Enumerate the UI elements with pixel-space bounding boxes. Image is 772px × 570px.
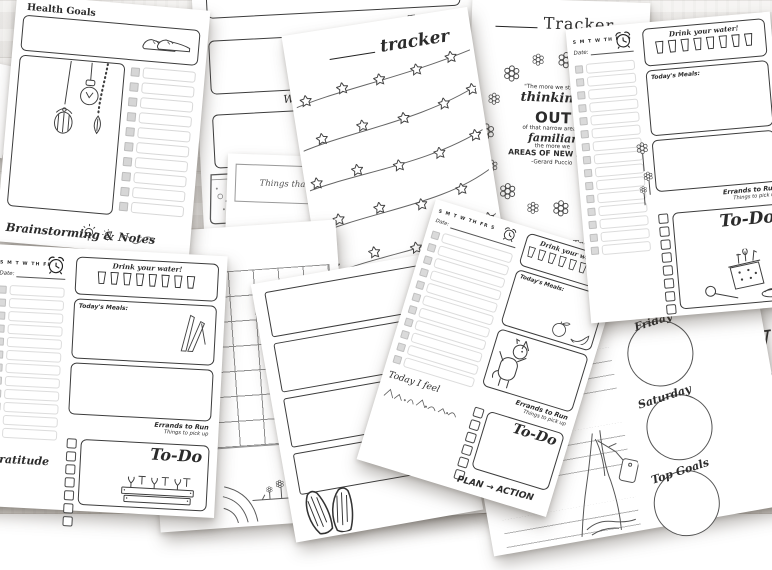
todo-checkbox: [665, 291, 676, 302]
todo-checkbox: [457, 456, 469, 468]
todo-checkbox: [64, 490, 75, 501]
todo-checkbox: [66, 451, 77, 462]
todo-checkbox: [461, 444, 473, 456]
meals-box: Today's Meals:: [71, 298, 217, 365]
todo-checkbox: [661, 252, 672, 263]
health-goals-page: Health Goals: [0, 0, 210, 258]
todo-checkbox: [63, 503, 74, 514]
swim-fins-doodle-icon: [295, 478, 369, 539]
todo-checkbox: [658, 213, 669, 224]
todo-checkbox: [64, 477, 75, 488]
water-box: Drink your water!: [642, 18, 768, 67]
todo-checkbox: [472, 406, 484, 418]
todo-checkbox: [659, 226, 670, 237]
daily-planner-top-right-page: S M T W TH FR S Date:: [566, 12, 772, 324]
date-label: Date:: [435, 218, 450, 228]
asparagus-doodle-icon: [174, 309, 210, 355]
todo-checkbox: [465, 431, 477, 443]
unicorn-doodle-icon: [485, 332, 537, 396]
sneakers-doodle-icon: [140, 33, 194, 58]
alarm-clock-icon: [613, 30, 634, 51]
todo-checkbox: [664, 278, 675, 289]
hanging-lights-doodle-icon: [40, 58, 118, 164]
todo-checkbox: [62, 516, 73, 527]
todo-checkbox: [666, 304, 677, 315]
schedule-row: [0, 425, 57, 441]
meals-box: Today's Meals:: [645, 60, 772, 136]
todo-checkbox: [660, 239, 671, 250]
date-label: Date:: [573, 50, 588, 57]
suns-doodle-icon: [78, 222, 163, 249]
todo-checkbox: [66, 438, 77, 449]
gratitude-label: Gratitude: [0, 452, 56, 468]
todo-label: To-Do: [511, 421, 559, 450]
todo-checkbox: [663, 265, 674, 276]
notes-box: [68, 362, 214, 421]
notes-box: [652, 130, 772, 193]
date-label: Date:: [0, 270, 15, 277]
wood-table-background: Tuesday We: [0, 0, 772, 514]
water-box: Drink your water!: [74, 256, 219, 301]
todo-checkbox: [65, 464, 76, 475]
todo-checkbox: [468, 419, 480, 431]
picnic-basket-doodle-icon: [698, 246, 772, 305]
alarm-clock-icon: [45, 255, 66, 276]
daily-planner-bottom-left-page: S M T W TH FR S Date: Gratitude: [0, 244, 228, 518]
garden-bed-doodle-icon: [116, 468, 204, 508]
todo-label: To-Do: [150, 445, 203, 467]
notes-area-box: [7, 54, 126, 215]
todo-checkbox-strip: [64, 438, 77, 504]
title-blank-line: [330, 52, 376, 60]
title-blank-line: [495, 26, 537, 28]
fruit-doodle-icon: [549, 317, 593, 347]
todo-label: To-Do: [719, 207, 772, 232]
